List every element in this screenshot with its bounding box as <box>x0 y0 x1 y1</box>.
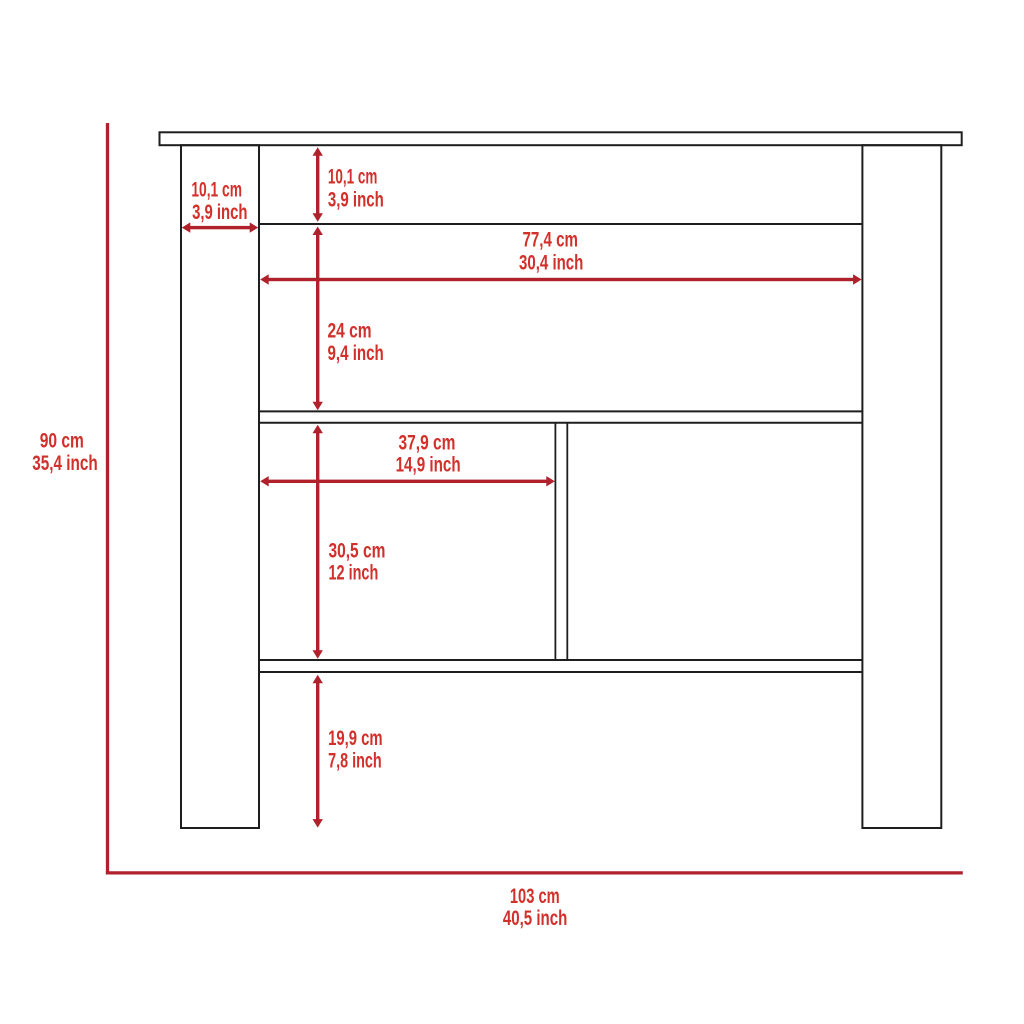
svg-text:3,9 inch: 3,9 inch <box>192 199 247 224</box>
svg-text:10,1 cm: 10,1 cm <box>191 176 242 201</box>
svg-text:24 cm: 24 cm <box>328 318 372 343</box>
svg-text:90 cm: 90 cm <box>40 428 84 453</box>
svg-text:10,1 cm: 10,1 cm <box>328 164 378 189</box>
svg-text:7,8 inch: 7,8 inch <box>328 748 382 773</box>
svg-text:14,9 inch: 14,9 inch <box>396 452 461 477</box>
svg-text:19,9 cm: 19,9 cm <box>328 725 383 750</box>
svg-text:30,4 inch: 30,4 inch <box>519 250 583 275</box>
svg-text:35,4 inch: 35,4 inch <box>32 450 98 475</box>
svg-text:77,4 cm: 77,4 cm <box>523 227 578 252</box>
svg-text:12 inch: 12 inch <box>329 560 379 585</box>
svg-text:3,9 inch: 3,9 inch <box>328 187 384 212</box>
svg-text:9,4 inch: 9,4 inch <box>328 340 384 365</box>
svg-text:40,5 inch: 40,5 inch <box>503 905 567 930</box>
